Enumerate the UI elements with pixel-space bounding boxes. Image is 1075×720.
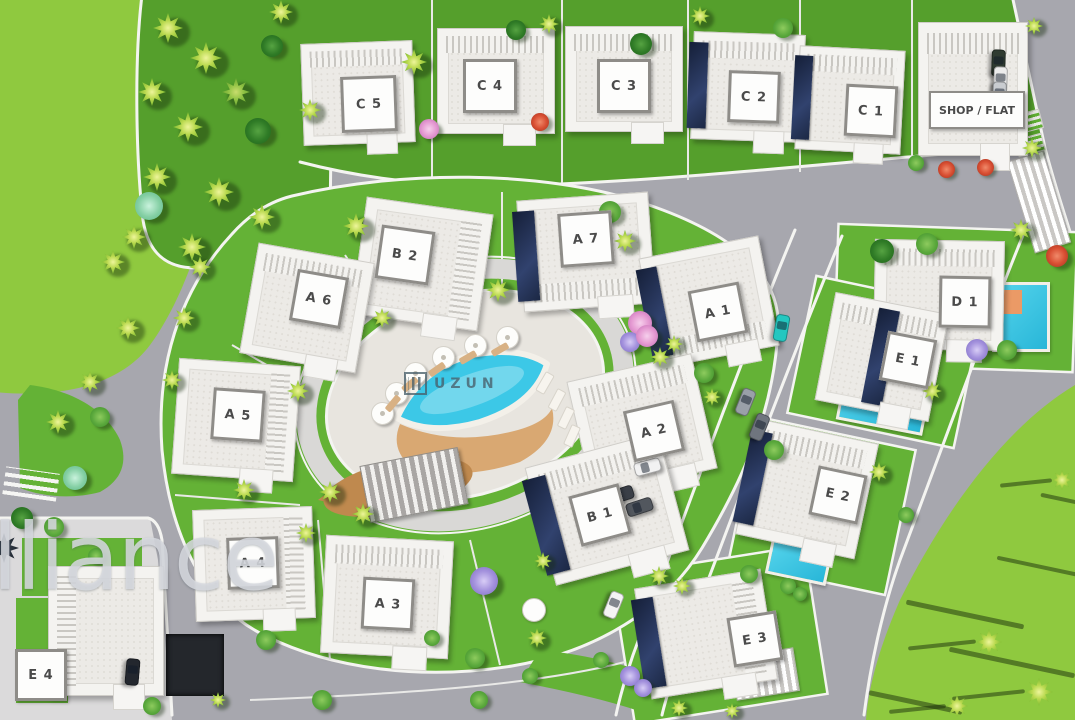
site-plan: C 5C 4C 3C 2C 1SHOP / FLATB 2A 7A 6A 1D … (0, 0, 1075, 720)
e4-lawn-top (22, 538, 142, 596)
e4-lawn-left (16, 598, 68, 703)
site-plan-canvas (0, 0, 1075, 720)
